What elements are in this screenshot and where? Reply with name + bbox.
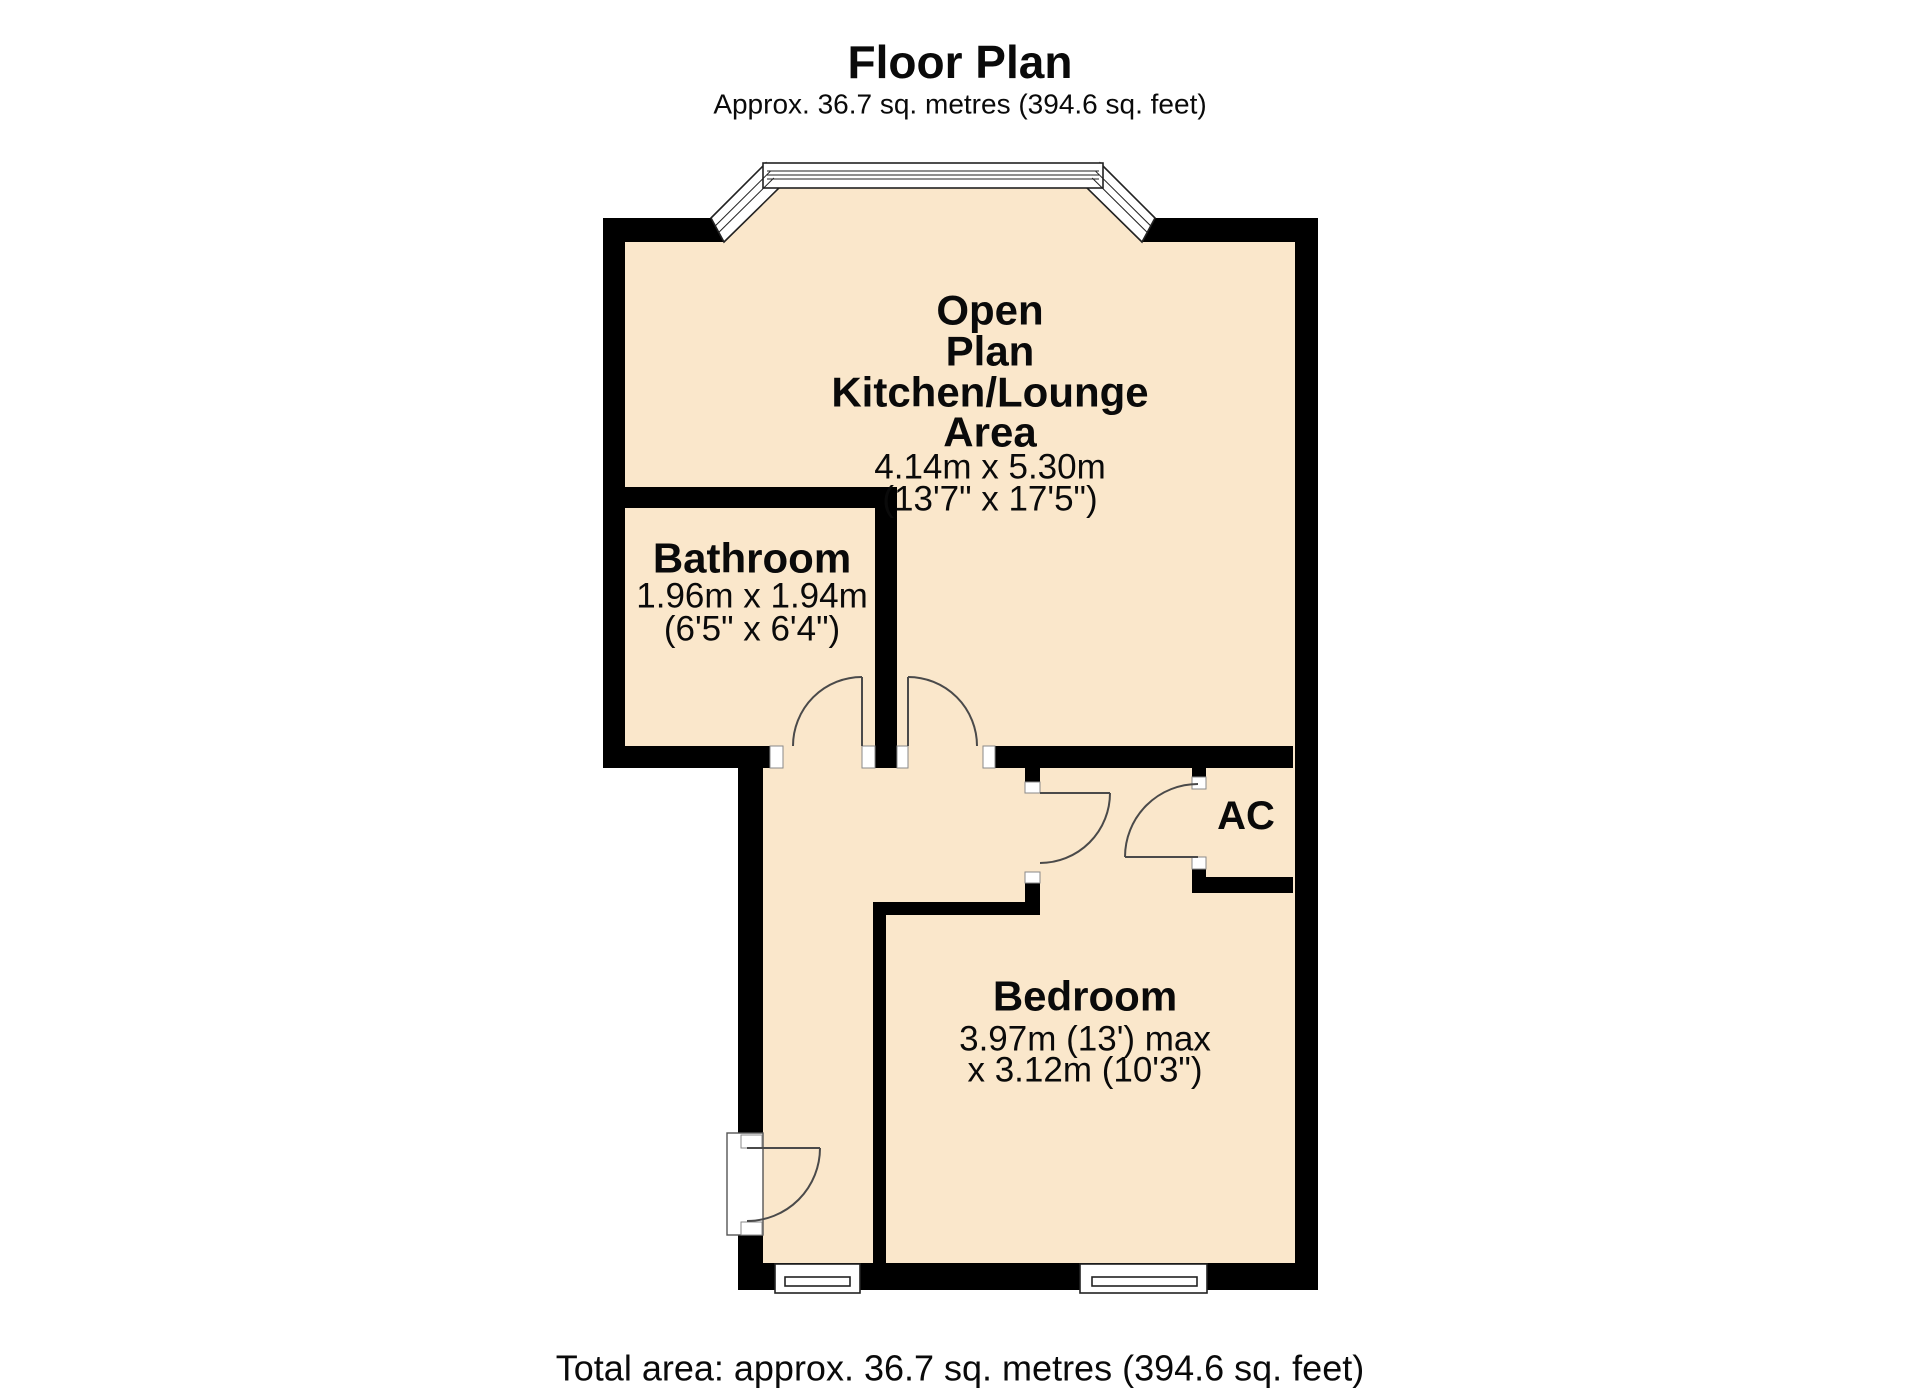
wall-segment [873,902,886,1263]
bedroom-dims-line2: x 3.12m (10'3") [967,1051,1202,1090]
floor-plan-document: Floor Plan Approx. 36.7 sq. metres (394.… [0,0,1920,1396]
wall-segment [1192,877,1293,893]
ac-closet-label: AC [1217,794,1275,838]
bedroom-window [1080,1264,1207,1293]
open-plan-name-line: Plan [946,328,1035,375]
bedroom-label: Bedroom 3.97m (13') max x 3.12m (10'3") [959,973,1211,1090]
open-plan-dims-imperial: (13'7" x 17'5") [882,480,1097,519]
total-area-label: Total area: approx. 36.7 sq. metres (394… [556,1348,1364,1389]
wall-segment [1295,218,1318,1290]
open-plan-name-line: Open [936,287,1043,334]
hall-window [775,1264,860,1293]
wall-segment [603,746,770,768]
page-subtitle: Approx. 36.7 sq. metres (394.6 sq. feet) [713,89,1206,120]
bathroom-dims-imperial: (6'5" x 6'4") [664,610,840,649]
wall-segment [875,746,897,768]
wall-segment [1025,746,1040,782]
wall-segment [873,902,1040,915]
floor-plan-drawing: Floor Plan Approx. 36.7 sq. metres (394.… [0,0,1920,1396]
ac-closet-name: AC [1217,794,1275,838]
wall-segment [603,487,875,508]
bathroom-label: Bathroom 1.96m x 1.94m (6'5" x 6'4") [636,535,868,649]
wall-segment [1025,883,1040,915]
wall-segment [1142,218,1318,242]
wall-segment [1192,746,1206,777]
bathroom-name: Bathroom [653,535,851,582]
bedroom-name: Bedroom [993,973,1177,1020]
wall-segment [875,487,897,746]
page-title: Floor Plan [848,36,1073,88]
